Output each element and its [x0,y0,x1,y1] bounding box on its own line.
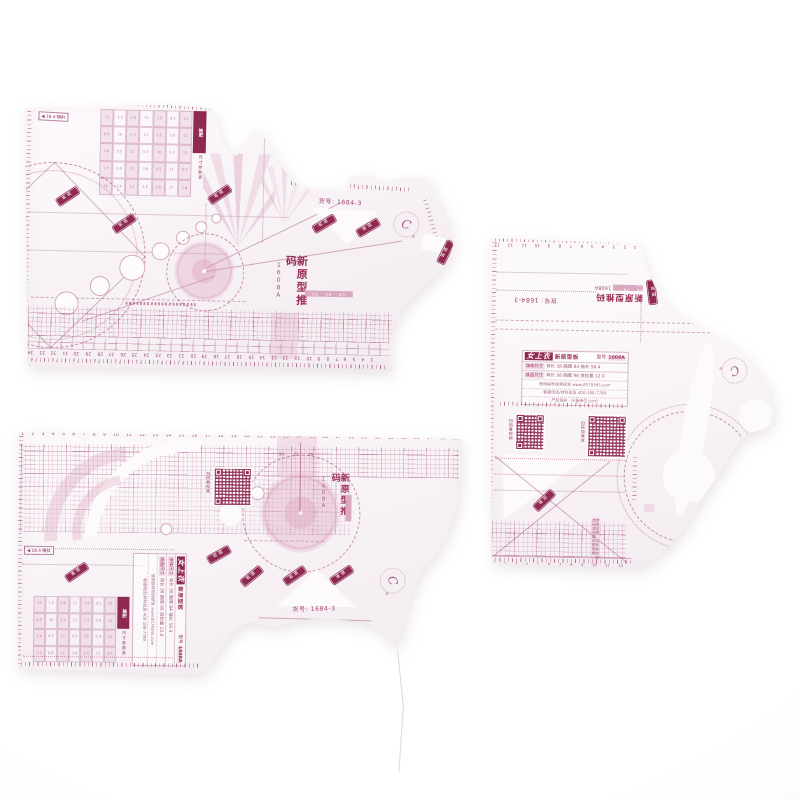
parameter-cell: 12 [179,128,193,145]
item-number: 货号: 1684-3 [514,296,557,306]
model-number-vertical: 1608A [275,262,282,302]
logo-letter: C [728,363,742,378]
top-edge-ruler [33,96,213,110]
size-strip: 36 · 38 · 40 [305,290,353,297]
parameter-cell: 0.8 [92,613,104,630]
template-piece-right-wrap: 13121110987654321 女上衣 新原型板 [486,228,786,576]
circle-cutout [738,399,773,434]
badge-text: 省道 [318,219,331,229]
parameter-cell: 0.8 [112,161,125,178]
brand-logo: C® [377,565,409,597]
highlight-zone [644,504,654,512]
template-piece-bottom-left: 1234567891011121314151617181920212223242… [14,420,464,682]
parameter-cell: 0.8 [45,645,57,662]
logo-letter: C [386,575,400,587]
parameter-cell: 9.5 [45,629,57,646]
parameter-cell: 12 [140,110,153,127]
parameter-cell: 12 [125,161,138,178]
fine-print-row [126,302,196,306]
parameter-cell: 13 [100,109,113,126]
parameter-cell: 1.5 [152,127,165,144]
registered-mark: ® [384,591,389,596]
qr-caption: 扫码看视频 [509,419,513,449]
parameter-cell: 3.6 [100,143,113,160]
sleeve-parameter-table: 131.50.8123.69.5110.5362.4131.50.8123.69… [33,596,130,663]
inner-edge-ruler [632,456,637,500]
info-line: 使用指导视频研发 www.8579345.com [148,554,157,665]
parameter-cell: 0.5 [178,162,192,179]
info-panel: 女上衣 新原型板 型号 1608A 净体尺寸背长 38 胸围 84 袖长 56.… [521,350,629,407]
badge-text: 省道 [649,286,655,298]
template-piece-right: 13121110987654321 女上衣 新原型板 [486,228,786,576]
guide-dashed-line [495,320,720,325]
parameter-table-title: 袖肥 [197,128,202,137]
spec-values: 背长 38 胸围 96 放松量 12.0 [546,373,605,380]
parameter-cell: 3.6 [178,179,192,196]
parameter-cell: 13 [125,178,138,195]
parameter-cell: 9.5 [80,646,92,663]
parameter-cell: 13 [139,127,152,144]
registered-mark: ® [718,365,723,370]
parameter-cell: 3.6 [81,596,93,613]
parameter-cell: 2.4 [165,145,178,162]
highlight-zone [270,313,298,360]
model-value: 1608A [607,356,625,361]
parameter-cell: 36 [152,145,165,162]
parameter-cell: 11 [92,646,104,663]
seam-label-badge: 省道 [646,280,657,305]
underline [259,617,371,621]
badge-text: 省道 [739,456,751,467]
guide-dotted-vertical [640,300,642,342]
mid-ruler [500,402,626,408]
circle-cutout [662,449,715,502]
parameter-cell: 12 [104,613,116,630]
parameter-cell: 12 [57,646,69,663]
parameter-cell: 9.5 [93,596,105,613]
parameter-cell: 0.8 [57,596,69,613]
parameter-cell: 13 [178,145,192,162]
parameter-cell: 13 [33,596,45,613]
title-block-rotated: 新原型推码 36 · 38 · 40 1608A [577,275,643,304]
parameter-cell: 0.5 [33,612,45,629]
badge-text: 省道 [441,246,450,259]
seam-label-badge: 省道 [733,451,757,472]
parameter-cell: 0.5 [100,126,113,143]
spec-label: 成品尺寸 [524,372,544,378]
spec-row: 净体尺寸背长 38 胸围 84 袖长 56.4 [165,554,175,665]
guide-dashed-line [495,329,735,334]
spec-label: 净体尺寸 [167,556,173,576]
seam-label-badge: 省道 [330,565,354,585]
parameter-grid: 131.50.8123.69.5110.5362.4131.50.8123.69… [33,596,117,663]
parameter-cell: 0.5 [69,629,81,646]
parameter-cell: 11 [104,597,116,614]
loose-thread [398,706,404,772]
model-label: 型号 [597,355,606,360]
info-line: 客服电话/材料批发 400-188-7789 [140,554,149,665]
model-field: 型号 1608A [597,354,626,361]
curve-circle [151,242,169,260]
parameter-cell: 1.5 [113,109,126,126]
parameter-cell: 1.5 [138,179,151,196]
item-number: 货号: 1684-3 [292,603,335,613]
series-title-vertical: 新原型推码 [284,255,307,319]
parameter-cell: 2.4 [57,613,69,630]
parameter-cell: 0.5 [104,646,116,663]
size-strip: 36 · 38 · 40 [613,285,643,292]
spec-label: 净体尺寸 [525,363,545,369]
parameter-cell: 1.5 [81,613,93,630]
badge-text: 省道 [362,223,375,233]
parameter-cell: 0.8 [151,179,164,196]
parameter-cell: 9.5 [113,144,126,161]
parameter-cell: 11 [57,629,69,646]
qr-caption: 扫码看视频 [206,472,210,504]
corner-measure-label: ◀ 18.4·横斜 [24,546,54,555]
fold-cutout [502,454,585,521]
parameter-cell: 13 [69,613,81,630]
brand-logo: C® [717,353,752,388]
dart-fan [260,166,309,223]
photo-canvas: 131.50.8123.69.5110.5362.4131.50.8123.69… [0,0,800,800]
parameter-cell: 3.6 [139,161,152,178]
badge-text: 省道 [336,570,348,580]
panel-subtitle: 新原型板 [176,586,184,610]
parameter-cell: 1.5 [45,596,57,613]
template-piece-top-left-wrap: 131.50.8123.69.5110.5362.4131.50.8123.69… [22,96,460,376]
corner-measure-label: ◀ 18.4·横斜 [38,111,68,122]
top-ruler-numbers: 1234567891011121314151617181920212223242… [21,433,459,442]
template-piece-bottom-left-wrap: 1234567891011121314151617181920212223242… [14,420,464,682]
parameter-cell: 3.6 [68,646,80,663]
spec-row: 成品尺寸背长 38 胸围 96 放松量 12.0 [156,554,166,665]
brand-logo: C® [389,208,423,242]
parameter-cell: 13 [104,630,116,647]
parameter-cell: 36 [80,629,92,646]
parameter-cell: 11 [126,144,139,161]
spec-values: 背长 38 胸围 84 袖长 56.4 [167,578,174,632]
parameter-cell: 11 [179,111,193,128]
guide-dotted-line [496,272,626,275]
parameter-cell: 2.4 [126,127,139,144]
spec-label: 成品尺寸 [158,556,164,576]
panel-subtitle: 新原型板 [555,353,579,361]
sleeve-parameter-table: 131.50.8123.69.5110.5362.4131.50.8123.69… [99,109,207,197]
parameter-table-header: 袖肥 [117,597,129,629]
spec-values: 背长 38 胸围 84 袖长 56.4 [546,364,600,371]
parameter-cell: 9.5 [166,110,179,127]
panel-header: 女上衣 新原型板 型号 1608A [174,554,186,665]
parameter-cell: 3.6 [33,629,45,646]
qr-code [516,415,544,449]
model-value: 1608A [177,645,182,663]
info-panel-rotated-wrap: 女上衣 新原型板 型号 1608A 净体尺寸背长 38 胸围 84 袖长 56.… [132,553,187,667]
parameter-table-title: 袖肥 [121,608,126,617]
bottom-edge-ruler [21,662,201,668]
parameter-cell: 0.8 [166,128,179,145]
parameter-table-note: 尺寸参数表 [122,631,126,663]
logo-letter: C [400,217,413,232]
parameter-cell: 11 [165,162,178,179]
registered-mark: ® [411,234,416,239]
item-number: 货号: 1684-3 [319,196,363,207]
spec-values: 背长 38 胸围 96 放松量 12.0 [158,578,165,637]
brand-box: 女上衣 [176,556,185,584]
qr-caption: 扫码加微信 [581,421,585,451]
parameter-cell: 9.5 [152,162,165,179]
parameter-cell: 3.6 [153,110,166,127]
parameter-cell: 12 [165,179,178,196]
model-label: 型号 [177,634,182,643]
model-number-vertical: 1608A [320,477,325,511]
parameter-cell: 0.8 [127,110,140,127]
info-panel: 女上衣 新原型板 型号 1608A 净体尺寸背长 38 胸围 84 袖长 56.… [132,553,187,667]
parameter-cell: 0.5 [139,144,152,161]
parameter-cell: 1.5 [33,645,45,662]
qr-code [214,469,250,505]
model-number: 1608A [595,284,611,290]
template-piece-top-left: 131.50.8123.69.5110.5362.4131.50.8123.69… [22,96,460,376]
parameter-cell: 36 [113,126,126,143]
qr-code [588,416,626,457]
parameter-cell: 36 [45,612,57,629]
parameter-cell: 12 [69,596,81,613]
brand-box: 女上衣 [525,352,553,361]
size-strip [345,495,351,521]
left-edge-ruler [17,434,23,664]
model-field: 型号 1608A [177,634,183,663]
parameter-table-header: 袖肥 [193,111,207,153]
parameter-cell: 2.4 [92,629,104,646]
